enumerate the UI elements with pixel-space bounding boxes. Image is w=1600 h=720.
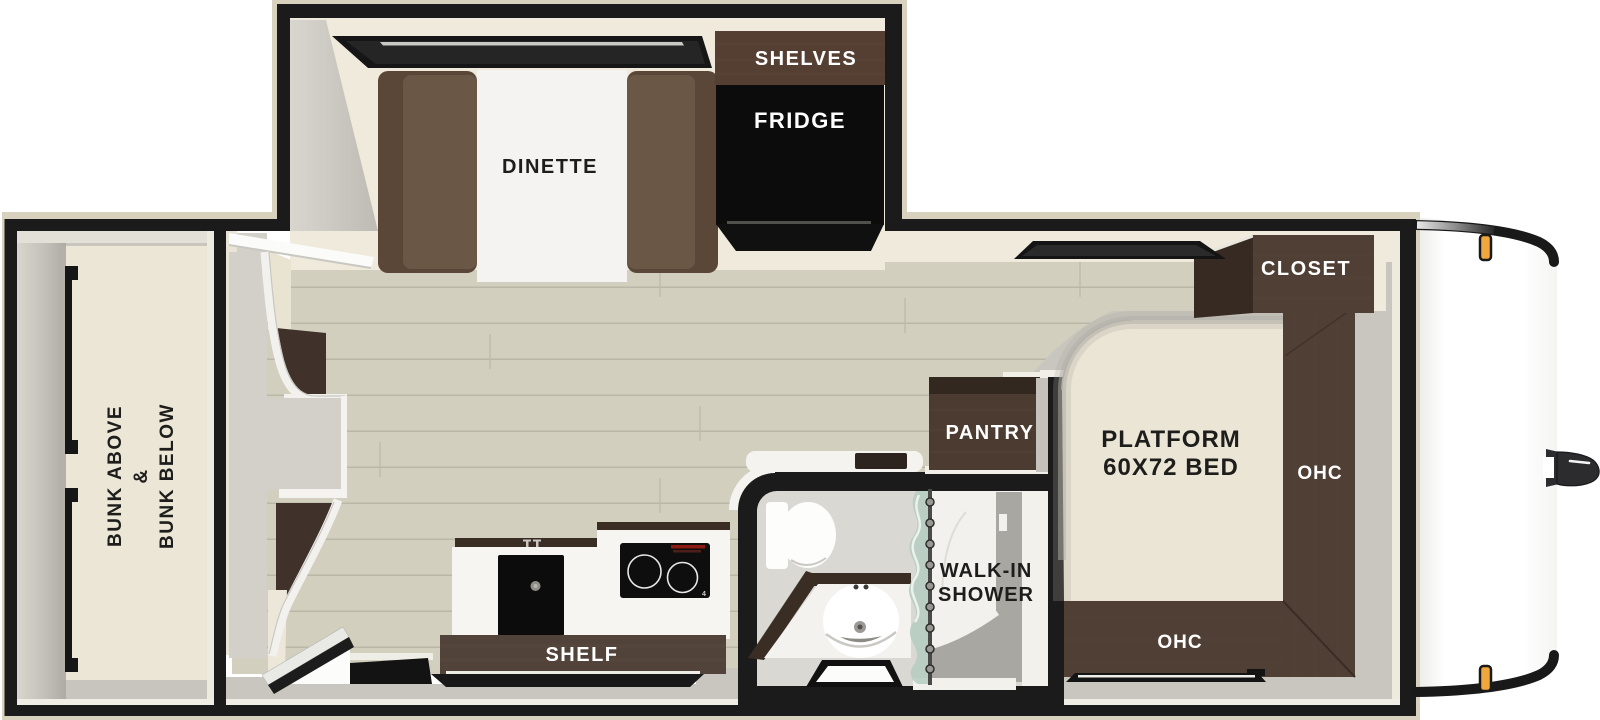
svg-text:WALK-IN: WALK-IN	[940, 560, 1033, 582]
svg-text:SHELVES: SHELVES	[755, 48, 857, 70]
svg-text:&: &	[131, 468, 152, 483]
svg-text:4: 4	[702, 591, 706, 598]
svg-text:OHC: OHC	[1157, 632, 1202, 653]
svg-text:SHELF: SHELF	[545, 644, 618, 666]
svg-text:BUNK ABOVE: BUNK ABOVE	[105, 405, 126, 547]
svg-text:60X72 BED: 60X72 BED	[1103, 454, 1239, 481]
svg-text:FRIDGE: FRIDGE	[754, 108, 846, 133]
svg-text:SHOWER: SHOWER	[938, 584, 1034, 606]
svg-text:DINETTE: DINETTE	[502, 156, 598, 178]
svg-text:PLATFORM: PLATFORM	[1101, 426, 1241, 453]
svg-text:PANTRY: PANTRY	[946, 422, 1035, 444]
svg-text:OHC: OHC	[1297, 463, 1342, 484]
svg-text:CLOSET: CLOSET	[1261, 258, 1351, 280]
svg-text:BUNK BELOW: BUNK BELOW	[157, 403, 178, 549]
